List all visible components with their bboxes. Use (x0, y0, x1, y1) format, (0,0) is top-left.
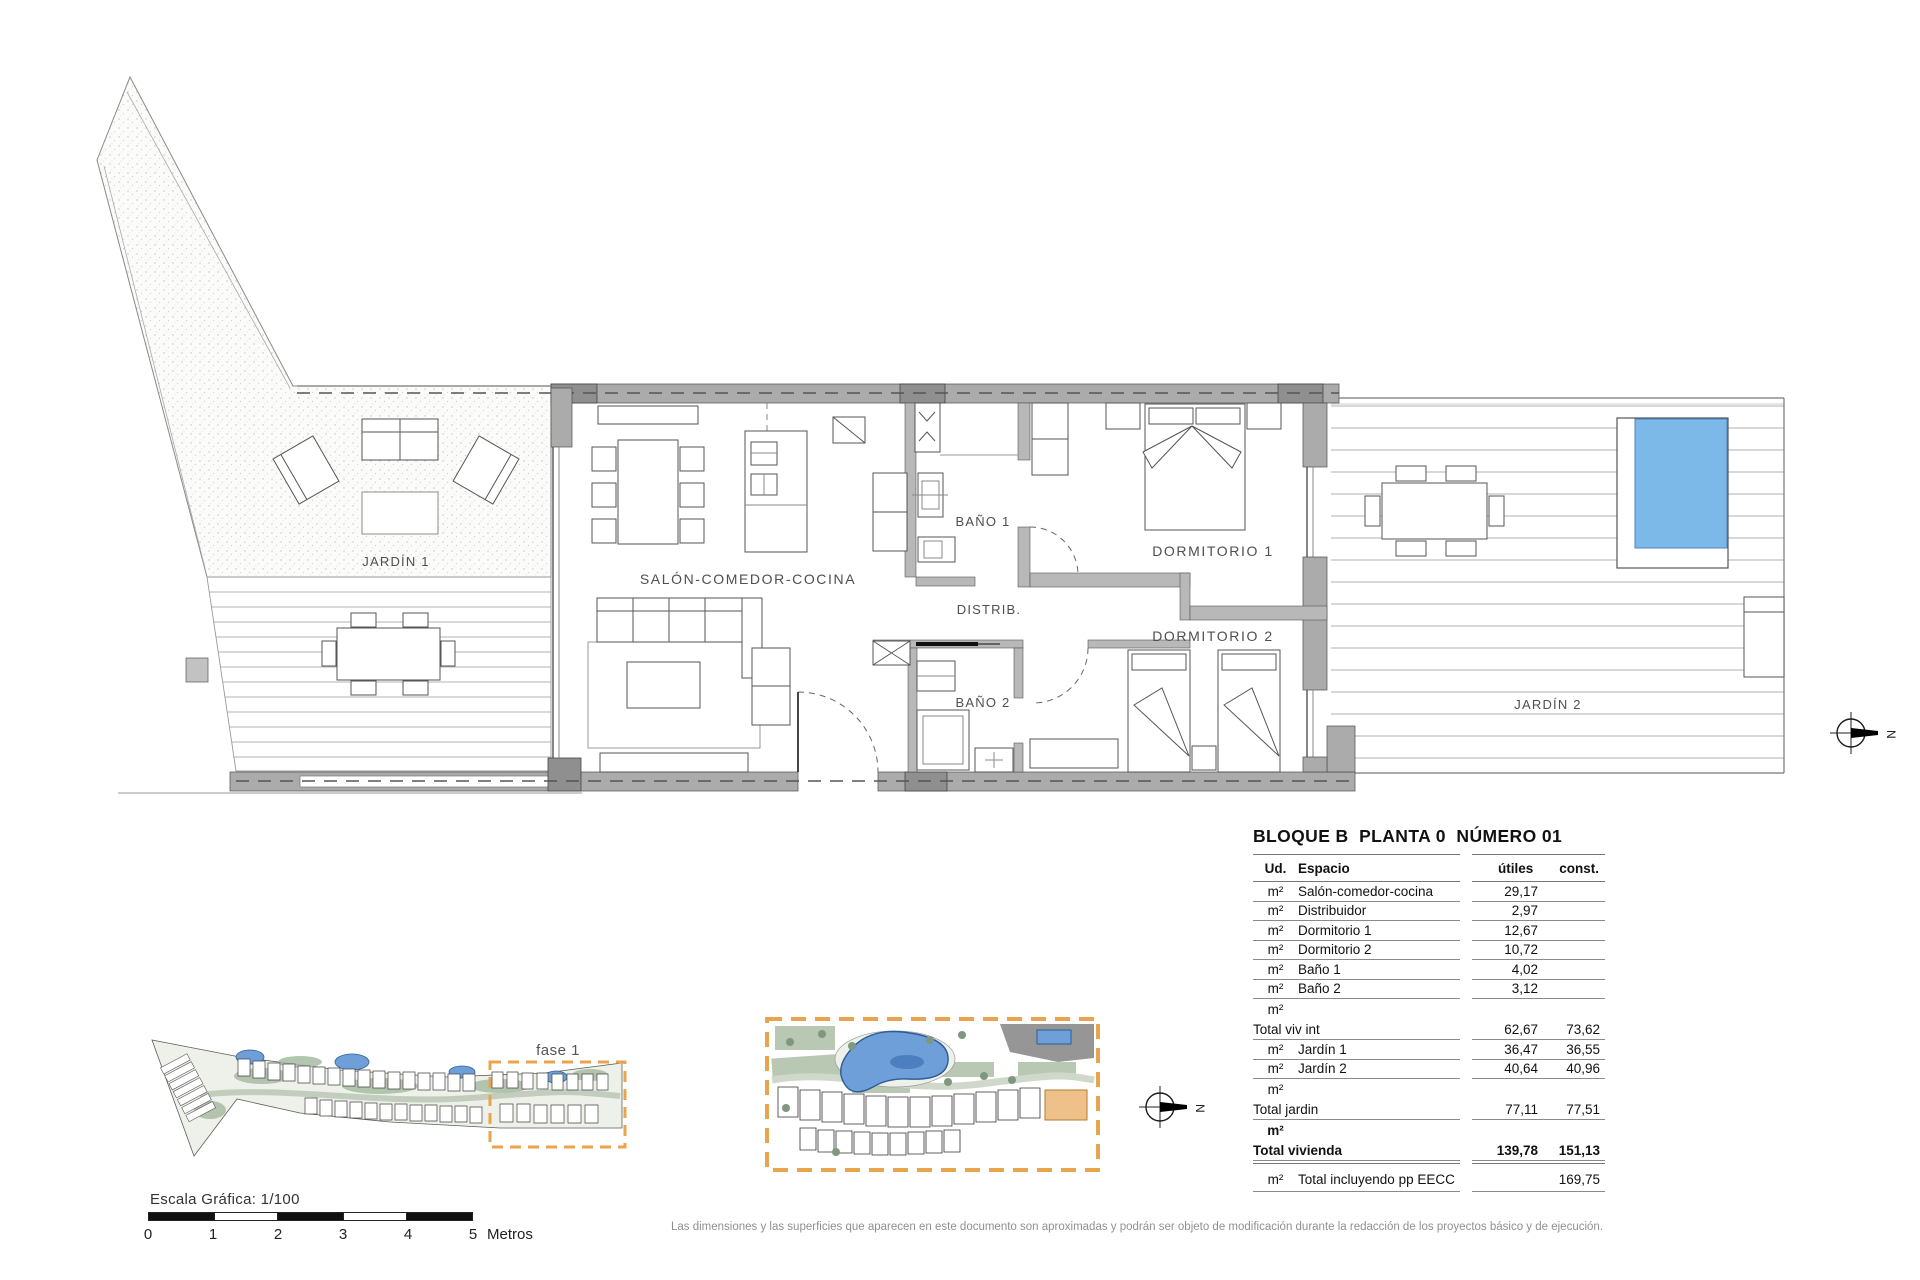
col-espacio: Espacio (1298, 861, 1460, 876)
bathroom1-fixtures (912, 455, 1018, 562)
fase1-label: fase 1 (536, 1042, 580, 1059)
bedroom2-furniture (1030, 650, 1280, 772)
north-compass-icon-2: N (1139, 1086, 1207, 1128)
room-label-salon: SALÓN-COMEDOR-COCINA (640, 571, 856, 587)
table-header-row: Ud. Espacio útiles const. (1253, 855, 1605, 881)
floor-plan-drawing: JARDÍN 1 JARDÍN 2 (0, 0, 1920, 1280)
north-compass-icon: N (1830, 712, 1898, 754)
site-plan-fase1-detail (767, 1019, 1098, 1170)
table-row: m²Total jardin77,1177,51 (1253, 1079, 1605, 1120)
table-row: m²Baño 14,02 (1253, 960, 1605, 980)
site-plan-overview: fase 1 (152, 1040, 625, 1156)
table-row: m²Jardín 240,6440,96 (1253, 1060, 1605, 1080)
scale-tick: 2 (270, 1226, 286, 1243)
table-row: m²Baño 23,12 (1253, 980, 1605, 1000)
scale-tick: 4 (400, 1226, 416, 1243)
svg-text:N: N (1884, 730, 1898, 739)
table-title: BLOQUE B PLANTA 0 NÚMERO 01 (1253, 826, 1605, 847)
table-row: m²Dormitorio 210,72 (1253, 941, 1605, 961)
room-label-jardin1: JARDÍN 1 (362, 554, 429, 569)
table-row: m²Total vivienda139,78151,13 (1253, 1120, 1605, 1161)
table-row: m²Salón-comedor-cocina29,17 (1253, 882, 1605, 902)
sunbed (1744, 597, 1784, 677)
room-label-distrib: DISTRIB. (957, 602, 1022, 617)
pool (1617, 418, 1728, 568)
garden-2-area: JARDÍN 2 (1331, 398, 1784, 773)
scale-bar (148, 1212, 473, 1221)
table-row: m²Total viv int62,6773,62 (1253, 999, 1605, 1040)
bathroom2-fixtures (917, 661, 1013, 772)
table-row: m²Dormitorio 112,67 (1253, 921, 1605, 941)
area-summary-table: BLOQUE B PLANTA 0 NÚMERO 01 Ud. Espacio … (1253, 826, 1605, 1192)
scale-tick: 3 (335, 1226, 351, 1243)
highlighted-unit (1045, 1090, 1087, 1120)
garden-gate (186, 658, 208, 682)
col-const: const. (1543, 861, 1605, 876)
table-row: m²Jardín 136,4736,55 (1253, 1040, 1605, 1060)
scale-unit: Metros (487, 1226, 533, 1243)
table-row: m²Total incluyendo pp EECC169,75 (1253, 1167, 1605, 1192)
summary-table-rows: m²Salón-comedor-cocina29,17m²Distribuido… (1253, 882, 1605, 1192)
salon-kitchen-furniture (588, 403, 907, 772)
bedroom1-furniture (1032, 403, 1281, 530)
scale-tick: 1 (205, 1226, 221, 1243)
plan-sheet: JARDÍN 1 JARDÍN 2 (0, 0, 1920, 1280)
disclaimer-text: Las dimensiones y las superficies que ap… (592, 1221, 1682, 1233)
table-row: m²Distribuidor2,97 (1253, 902, 1605, 922)
scale-tick: 0 (140, 1226, 156, 1243)
scale-title: Escala Gráfica: 1/100 (150, 1191, 300, 1208)
rule (1253, 1163, 1605, 1164)
svg-text:N: N (1193, 1104, 1207, 1113)
col-utiles: útiles (1472, 861, 1543, 876)
col-ud: Ud. (1253, 861, 1298, 876)
room-label-jardin2: JARDÍN 2 (1514, 697, 1581, 712)
room-label-bano2: BAÑO 2 (956, 695, 1011, 710)
room-label-dorm1: DORMITORIO 1 (1152, 543, 1274, 559)
room-label-bano1: BAÑO 1 (956, 514, 1011, 529)
room-label-dorm2: DORMITORIO 2 (1152, 628, 1274, 644)
scale-tick: 5 (465, 1226, 481, 1243)
garden-1-area: JARDÍN 1 (97, 77, 551, 771)
